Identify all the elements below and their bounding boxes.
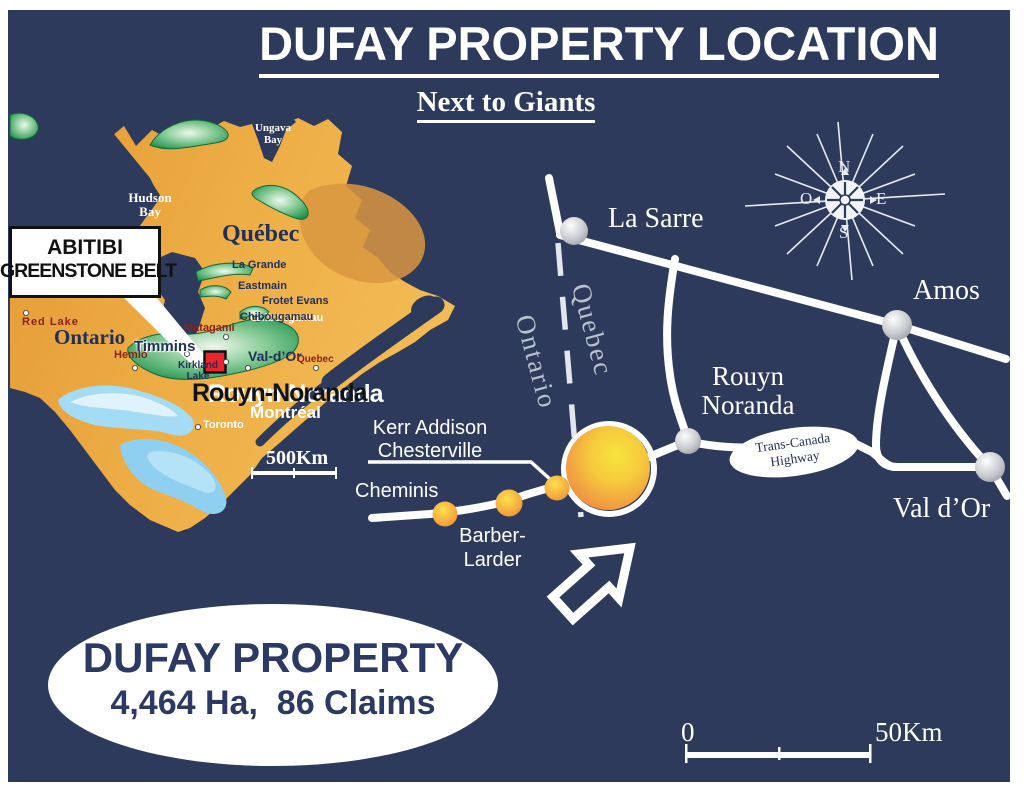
barber-larder-deposit <box>496 490 523 517</box>
scale-end-label: 50Km <box>875 718 943 747</box>
page-subtitle-wrap: Next to Giants <box>330 86 682 123</box>
label-quebec-province: Québec <box>222 222 299 248</box>
label-ungava-bay: Ungava Bay <box>245 123 301 147</box>
label-cheminis: Cheminis <box>355 481 438 503</box>
property-name: DUFAY PROPERTY <box>48 634 498 682</box>
abitibi-line1: ABITIBI <box>12 236 158 260</box>
label-quebec-city: Quebec <box>297 355 334 366</box>
kerr-addison-deposit <box>545 476 570 501</box>
label-val-dor-city: Val d’Or <box>893 494 990 524</box>
label-rouyn-noranda-city: Rouyn Noranda <box>688 362 808 420</box>
abitibi-line2: GREENSTONE BELT <box>0 260 178 283</box>
road-scale-bar <box>685 744 872 763</box>
map-figure: DUFAY PROPERTY LOCATION Next to Giants A… <box>0 0 1024 793</box>
property-details: 4,464 Ha, 86 Claims <box>48 684 498 723</box>
compass-n: N <box>838 158 850 176</box>
val-dor-node <box>975 452 1005 482</box>
label-barber-larder: Barber- Larder <box>440 524 545 572</box>
chesterville-leader-line <box>368 462 551 480</box>
label-ontario-province: Ontario <box>54 326 125 349</box>
page-subtitle: Next to Giants <box>417 86 596 123</box>
label-hudson-bay: Hudson Bay <box>120 191 180 219</box>
inset-scale-label: 500Km <box>266 448 328 470</box>
scale-start-label: 0 <box>681 718 695 747</box>
label-hemlo: Hemlo <box>114 350 148 362</box>
compass-o: O <box>800 190 812 208</box>
page-title-wrap: DUFAY PROPERTY LOCATION <box>185 16 1013 78</box>
rouyn-noranda-node <box>675 428 701 454</box>
label-matagami: Matagami <box>184 323 235 335</box>
label-amos: Amos <box>913 276 980 306</box>
label-val-dor-inset: Val-d’Or <box>248 349 302 364</box>
la-sarre-node <box>560 217 588 245</box>
property-badge: DUFAY PROPERTY 4,464 Ha, 86 Claims <box>48 604 498 766</box>
page-title: DUFAY PROPERTY LOCATION <box>259 16 939 78</box>
abitibi-callout-box: ABITIBI GREENSTONE BELT <box>9 226 161 298</box>
label-toronto: Toronto <box>203 420 244 432</box>
cheminis-deposit <box>433 502 458 527</box>
label-montreal: Montréal <box>250 404 321 422</box>
label-la-grande: La Grande <box>232 260 286 272</box>
pointer-arrow <box>553 548 630 619</box>
label-eastmain: Eastmain <box>238 281 287 293</box>
compass-e: E <box>876 190 886 208</box>
compass-rose <box>745 122 945 280</box>
compass-s: S <box>839 224 848 242</box>
amos-node <box>882 310 912 340</box>
label-kerr-addison-chesterville: Kerr Addison Chesterville <box>360 417 500 463</box>
label-frotet-evans: Frotet Evans <box>262 296 329 308</box>
dufay-deposit-circle <box>566 426 650 510</box>
label-red-lake: Red Lake <box>22 317 79 329</box>
label-chibougamau: Chibougamau <box>240 311 313 323</box>
label-la-sarre: La Sarre <box>608 204 704 234</box>
